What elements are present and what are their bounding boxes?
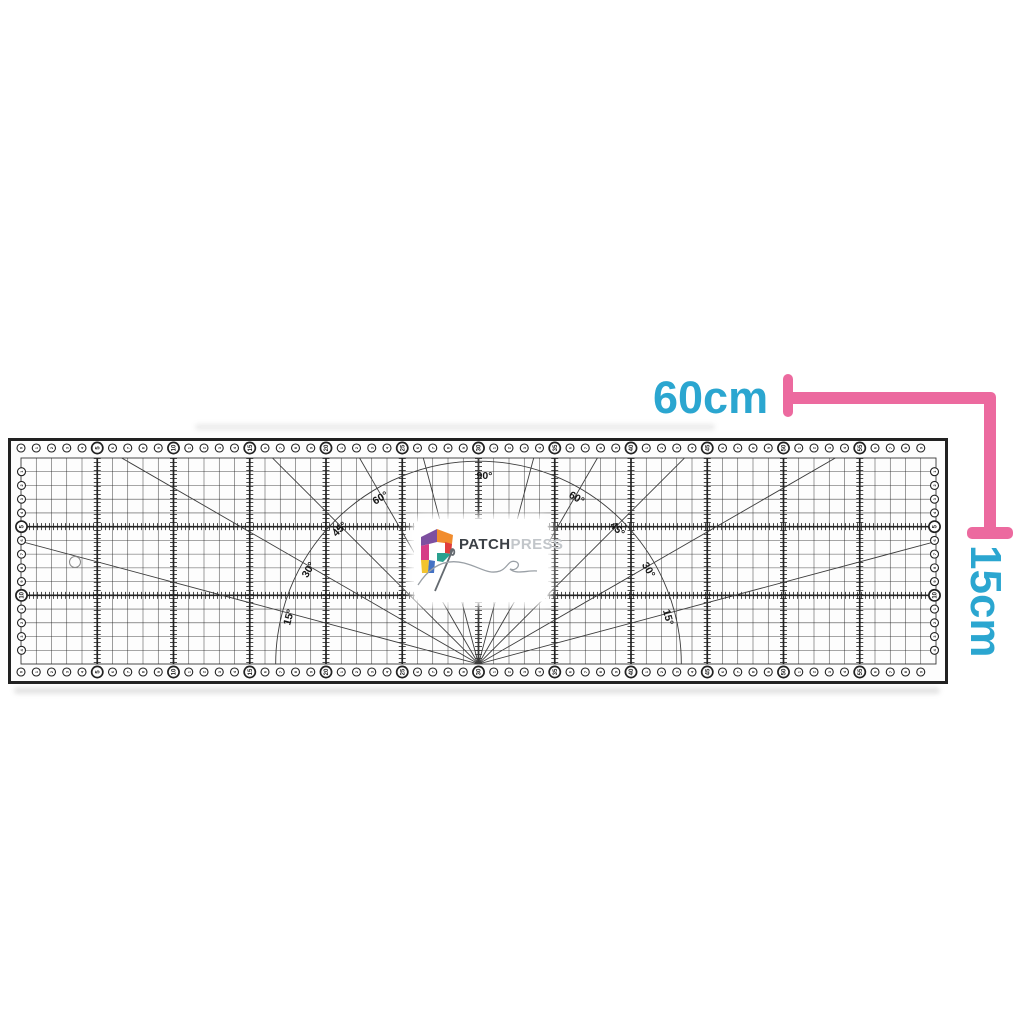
hole-number: 8	[294, 671, 298, 673]
angle-label: 90°	[477, 470, 493, 482]
hole-number: 3	[20, 498, 24, 500]
hole-number: 7	[279, 447, 283, 449]
bracket-vertical-bar	[984, 392, 996, 535]
hole-number: 7	[889, 447, 893, 449]
hole-number: 1	[797, 671, 801, 673]
hole-number: 20	[324, 444, 330, 451]
hole-number: 3	[523, 447, 527, 449]
hole-number: 3	[370, 671, 374, 673]
hole-number: 1	[492, 671, 496, 673]
hole-number: 6	[111, 671, 115, 673]
hole-number: 1	[187, 447, 191, 449]
ruler-shadow-top	[195, 424, 715, 430]
hole-number: 2	[355, 671, 359, 673]
bracket-horizontal-bar	[783, 392, 994, 404]
hole-number: 30	[477, 444, 483, 451]
hole-number: 0	[20, 671, 24, 673]
hole-number: 8	[20, 567, 24, 569]
hole-number: 7	[126, 671, 130, 673]
needle-icon	[435, 549, 453, 591]
hole-number: 3	[523, 671, 527, 673]
hole-number: 10	[172, 444, 178, 451]
hole-number: 1	[933, 608, 937, 610]
hole-number: 0	[20, 447, 24, 449]
hole-number: 3	[218, 671, 222, 673]
hole-number: 2	[50, 447, 54, 449]
hole-number: 9	[767, 671, 771, 673]
hole-number: 6	[20, 539, 24, 541]
hole-number: 3	[370, 447, 374, 449]
hole-number: 8	[599, 671, 603, 673]
hole-number: 1	[933, 471, 937, 473]
hole-number: 10	[172, 668, 178, 675]
hole-number: 3	[828, 671, 832, 673]
hole-number: 8	[447, 671, 451, 673]
hole-number: 9	[20, 581, 24, 583]
hole-number: 6	[874, 671, 878, 673]
hole-number: 6	[721, 671, 725, 673]
hole-number: 3	[933, 635, 937, 637]
hole-number: 9	[309, 447, 313, 449]
hole-number: 2	[50, 671, 54, 673]
hole-number: 9	[919, 447, 923, 449]
hole-number: 35	[553, 668, 559, 675]
hole-number: 8	[447, 447, 451, 449]
hole-number: 7	[933, 553, 937, 555]
hole-number: 3	[218, 447, 222, 449]
hole-number: 3	[933, 498, 937, 500]
hole-number: 8	[599, 447, 603, 449]
hole-number: 50	[782, 444, 788, 451]
hole-number: 35	[553, 444, 559, 451]
hole-number: 9	[462, 447, 466, 449]
hole-number: 40	[629, 668, 635, 675]
hole-number: 1	[35, 671, 39, 673]
product-photo: 90°60°45°30°15°60°45°30°15°0011223344556…	[0, 0, 1024, 1024]
hole-number: 2	[660, 447, 664, 449]
hole-number: 6	[569, 447, 573, 449]
hole-number: 1	[645, 447, 649, 449]
height-dimension-label: 15cm	[960, 545, 1010, 658]
hole-number: 9	[157, 671, 161, 673]
hole-number: 8	[752, 671, 756, 673]
hole-number: 30	[477, 668, 483, 675]
hole-number: 3	[828, 447, 832, 449]
hole-number: 2	[933, 622, 937, 624]
hole-number: 3	[675, 671, 679, 673]
hole-number: 8	[752, 447, 756, 449]
hole-number: 1	[35, 447, 39, 449]
hole-number: 1	[187, 671, 191, 673]
ruler-shadow-bottom	[14, 687, 940, 694]
hole-number: 3	[675, 447, 679, 449]
hole-number: 2	[20, 484, 24, 486]
hole-number: 2	[20, 622, 24, 624]
hole-number: 55	[858, 444, 864, 451]
hole-number: 2	[933, 484, 937, 486]
hole-number: 7	[20, 553, 24, 555]
hole-number: 2	[508, 447, 512, 449]
hole-number: 8	[904, 447, 908, 449]
brand-logo: PATCHPRESS	[414, 519, 548, 602]
hole-number: 7	[736, 447, 740, 449]
hole-number: 9	[462, 671, 466, 673]
hole-number: 10	[20, 591, 26, 598]
hole-number: 25	[400, 444, 406, 451]
hole-number: 2	[813, 447, 817, 449]
hole-number: 1	[492, 447, 496, 449]
hole-number: 1	[645, 671, 649, 673]
hole-number: 20	[324, 668, 330, 675]
hole-number: 6	[416, 671, 420, 673]
width-dimension-label: 60cm	[653, 372, 768, 424]
hole-number: 6	[416, 447, 420, 449]
hole-number: 6	[111, 447, 115, 449]
hole-number: 6	[264, 447, 268, 449]
hole-number: 8	[904, 671, 908, 673]
hole-number: 40	[629, 444, 635, 451]
hole-number: 2	[660, 671, 664, 673]
hole-number: 9	[157, 447, 161, 449]
hole-number: 55	[858, 668, 864, 675]
hole-number: 8	[142, 671, 146, 673]
hole-number: 25	[400, 668, 406, 675]
hole-number: 3	[65, 671, 69, 673]
hole-number: 7	[584, 447, 588, 449]
hole-number: 1	[340, 671, 344, 673]
hole-number: 3	[65, 447, 69, 449]
hole-number: 6	[264, 671, 268, 673]
bracket-bottom-cap	[967, 527, 1013, 539]
hole-number: 45	[705, 668, 711, 675]
hole-number: 2	[203, 447, 207, 449]
hole-number: 1	[340, 447, 344, 449]
hole-number: 6	[933, 539, 937, 541]
hole-number: 7	[431, 671, 435, 673]
hole-number: 15	[248, 668, 254, 675]
hole-number: 1	[20, 608, 24, 610]
hole-number: 9	[309, 671, 313, 673]
hole-number: 8	[933, 567, 937, 569]
hole-number: 7	[431, 447, 435, 449]
hole-number: 50	[782, 668, 788, 675]
hole-number: 9	[933, 581, 937, 583]
hole-number: 1	[797, 447, 801, 449]
hole-number: 6	[721, 447, 725, 449]
hole-number: 9	[767, 447, 771, 449]
hole-number: 9	[614, 671, 618, 673]
hole-number: 8	[142, 447, 146, 449]
hole-number: 2	[355, 447, 359, 449]
hole-number: 8	[294, 447, 298, 449]
hole-number: 7	[279, 671, 283, 673]
needle-and-thread-icon	[414, 519, 548, 602]
thread-curve	[418, 561, 537, 585]
hole-number: 7	[126, 447, 130, 449]
hole-number: 3	[20, 635, 24, 637]
hole-number: 45	[705, 444, 711, 451]
hole-number: 15	[248, 444, 254, 451]
hole-number: 2	[203, 671, 207, 673]
hole-number: 7	[584, 671, 588, 673]
hole-number: 2	[508, 671, 512, 673]
hole-number: 1	[20, 471, 24, 473]
hole-number: 7	[736, 671, 740, 673]
hole-number: 10	[933, 591, 939, 598]
hole-number: 6	[569, 671, 573, 673]
hole-number: 6	[874, 447, 878, 449]
hole-number: 9	[919, 671, 923, 673]
hole-number: 2	[813, 671, 817, 673]
hole-number: 7	[889, 671, 893, 673]
hole-number: 9	[614, 447, 618, 449]
